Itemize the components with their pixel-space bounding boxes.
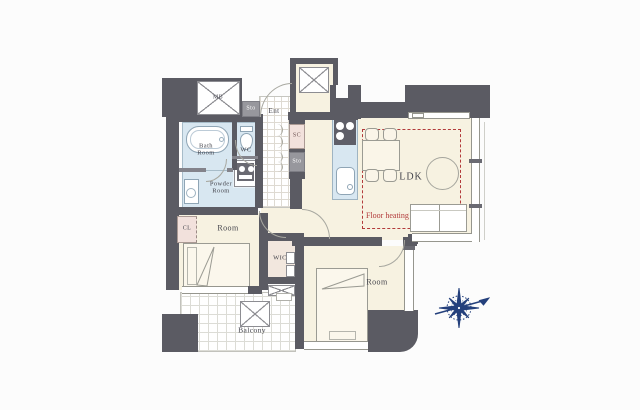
wall-sc-bottom xyxy=(289,171,305,179)
wic-shelf-2 xyxy=(286,265,295,277)
bathroom-label: Bath Room xyxy=(197,143,215,158)
dining-table xyxy=(362,140,400,171)
window-mullion-2 xyxy=(469,204,482,208)
bedroom-west-label: Room xyxy=(217,223,238,232)
compass-icon xyxy=(434,282,490,332)
window-mullion-1 xyxy=(469,159,482,163)
wall-bedroom-south-left xyxy=(295,241,304,349)
bathroom-label-line2: Room xyxy=(197,150,215,157)
meter-box-label: MB xyxy=(213,95,223,102)
dining-chair-2 xyxy=(383,128,397,141)
window-mullion-3 xyxy=(403,246,415,250)
bed-west xyxy=(183,243,250,288)
storage-entry-label: Sto xyxy=(246,106,255,113)
kitchen-sink-icon xyxy=(336,167,355,195)
window-ldk-south xyxy=(412,233,472,242)
wall-left xyxy=(166,114,179,290)
dining-chair-4 xyxy=(383,169,397,182)
shaft-hatch xyxy=(299,67,329,93)
wall-notch xyxy=(336,85,348,98)
window-bedroom-south-east xyxy=(404,249,414,311)
bathtub-drain xyxy=(219,137,224,142)
washer-drum-left xyxy=(239,166,245,172)
ldk-label: LDK xyxy=(399,171,423,183)
storage-hall-label: Sto xyxy=(292,159,301,166)
window-ldk-east xyxy=(471,118,480,242)
bed-south xyxy=(316,268,368,342)
wall-bath-bottom-b xyxy=(227,168,233,172)
washer-slot xyxy=(239,175,252,179)
closet-label: CL xyxy=(183,226,191,233)
bathroom-label-line1: Bath xyxy=(197,143,215,150)
powder-label-line1: Powder xyxy=(210,181,232,188)
balcony-step xyxy=(276,293,292,301)
wic-label: WIC xyxy=(273,254,287,261)
sofa-back-line xyxy=(411,210,466,211)
powder-sink-basin xyxy=(186,188,196,198)
shoe-closet-label: SC xyxy=(293,133,301,140)
dining-chair-3 xyxy=(365,169,379,182)
dining-chair-1 xyxy=(365,128,379,141)
window-outer-line xyxy=(484,122,485,240)
sofa xyxy=(410,204,467,232)
sofa-divider xyxy=(439,205,440,231)
wall-hall-right xyxy=(290,179,302,209)
column-bottom-right xyxy=(368,310,418,352)
stove-burner-2 xyxy=(346,122,354,130)
balcony-hatch xyxy=(240,301,270,327)
powder-room-label: Powder Room xyxy=(210,181,232,196)
wall-bath-bottom-a xyxy=(179,168,206,172)
kitchen-faucet xyxy=(347,184,353,190)
window-bedroom-south xyxy=(304,341,368,350)
floor-plan: MB Sto Ent SC Sto WC Bath Room Powder Ro… xyxy=(0,0,640,410)
stove-burner-3 xyxy=(336,132,344,140)
toilet-tank xyxy=(240,126,253,132)
column-bottom-left xyxy=(162,314,198,352)
floor-heating-label: Floor heating xyxy=(366,211,409,220)
round-table xyxy=(426,157,459,190)
wc-label: WC xyxy=(240,146,251,153)
bedroom-south-label: Room xyxy=(366,277,387,286)
window-bedroom-west xyxy=(182,286,248,294)
stove-burner-1 xyxy=(336,122,344,130)
balcony-label: Balcony xyxy=(238,327,266,336)
wall-bedroom-west-corner xyxy=(248,286,262,294)
high-window-vent xyxy=(412,113,424,118)
wall-powder-bottom xyxy=(166,207,258,215)
washer-drum-right xyxy=(248,166,254,172)
bed-west-fold xyxy=(184,244,251,289)
entrance-label: Ent xyxy=(269,107,280,115)
wic-shelf-1 xyxy=(286,252,295,264)
powder-label-line2: Room xyxy=(210,188,232,195)
bed-south-fold xyxy=(317,269,369,343)
